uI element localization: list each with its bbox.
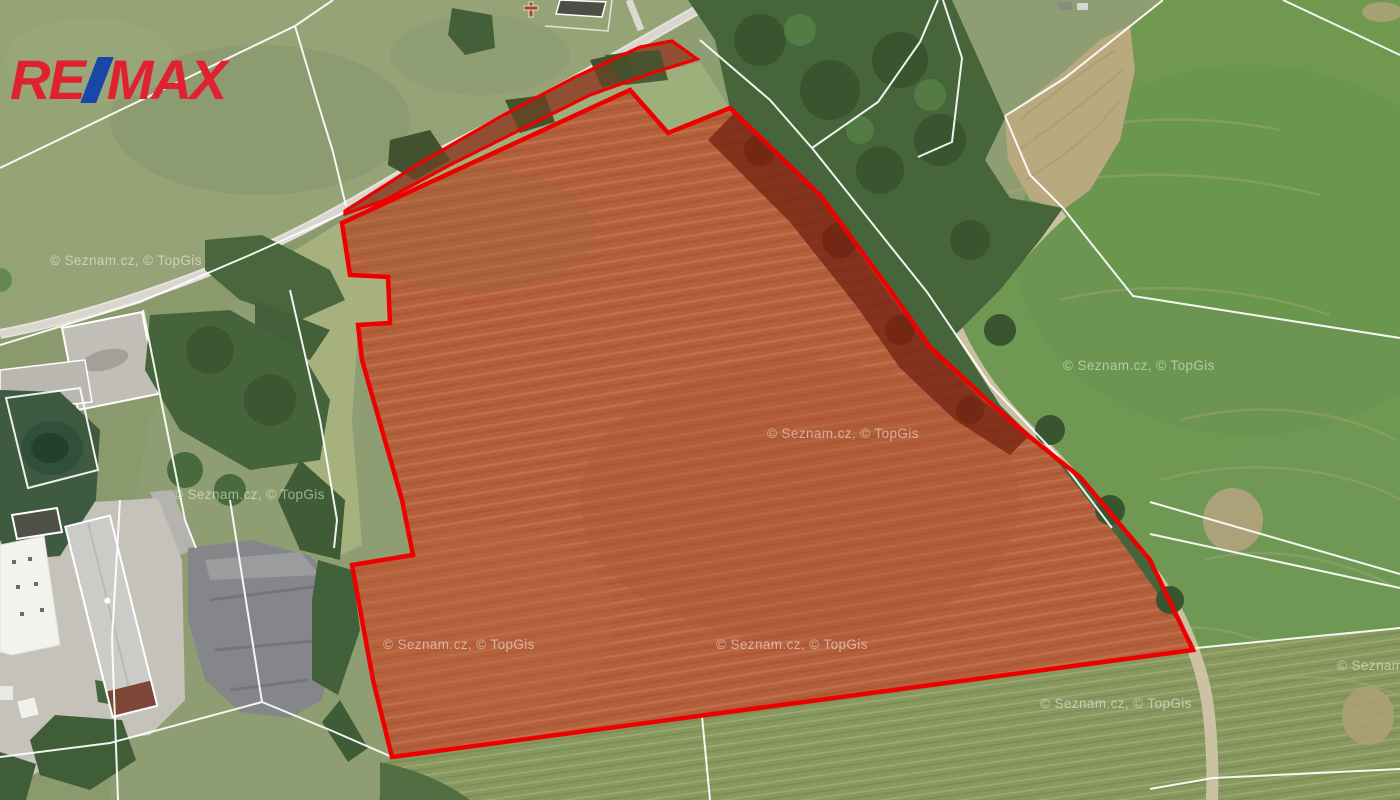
map-attribution: © Seznam.cz, © TopGis (173, 487, 325, 502)
map-attribution: © Seznam.cz, © TopGis (383, 637, 535, 652)
map-attribution: © Seznam.cz, © TopGis (1040, 696, 1192, 711)
logo-text-max: MAX (107, 52, 225, 108)
building-shed (18, 698, 37, 717)
logo-text-re: RE (10, 52, 84, 108)
aerial-map-view: © Seznam.cz, © TopGis © Seznam.cz, © Top… (0, 0, 1400, 800)
map-attribution: © Seznam.cz, © TopGis (50, 253, 202, 268)
building-top-road (556, 0, 606, 17)
map-attribution: © Seznam.cz, © TopGis (1337, 658, 1400, 673)
map-attribution: © Seznam.cz, © TopGis (716, 637, 868, 652)
remax-logo: RE MAX (10, 52, 225, 108)
map-attribution: © Seznam.cz, © TopGis (767, 426, 919, 441)
aerial-map-canvas (0, 0, 1400, 800)
map-attribution: © Seznam.cz, © TopGis (1063, 358, 1215, 373)
